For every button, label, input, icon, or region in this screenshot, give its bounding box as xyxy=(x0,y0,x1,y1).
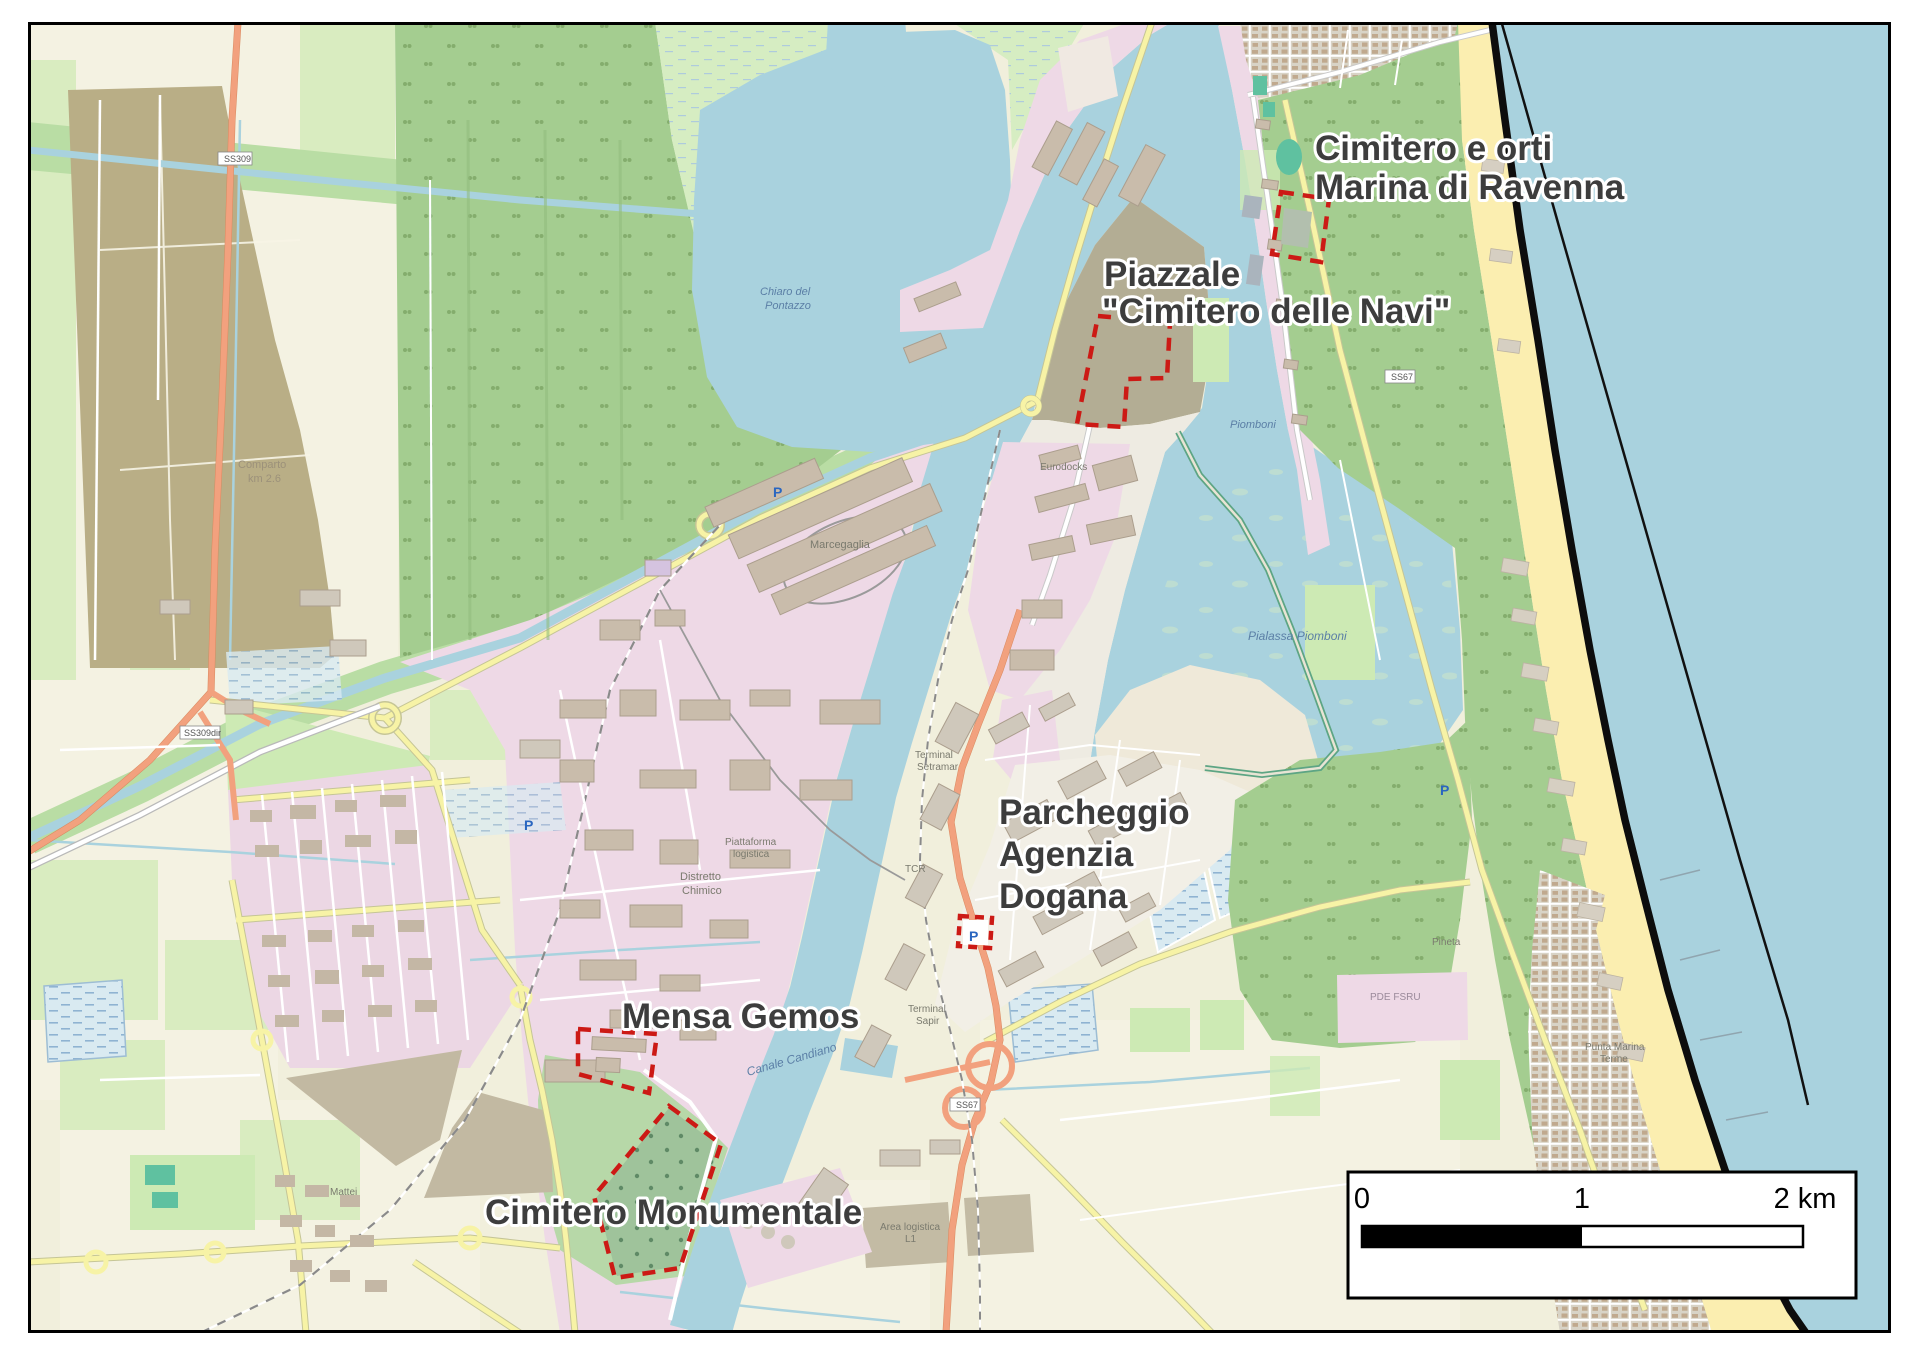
svg-text:Cimitero Monumentale: Cimitero Monumentale xyxy=(485,1193,862,1232)
svg-text:Sapir: Sapir xyxy=(916,1016,940,1027)
svg-text:logistica: logistica xyxy=(733,849,770,860)
svg-text:Dogana: Dogana xyxy=(999,877,1128,916)
svg-text:TCR: TCR xyxy=(905,864,926,875)
svg-text:P: P xyxy=(773,484,782,500)
svg-text:Marcegaglia: Marcegaglia xyxy=(810,539,871,551)
svg-text:Setramar: Setramar xyxy=(917,762,959,773)
svg-text:Terme: Terme xyxy=(1600,1054,1628,1065)
svg-text:Area logistica: Area logistica xyxy=(880,1222,940,1233)
svg-text:Distretto: Distretto xyxy=(680,871,721,883)
svg-text:P: P xyxy=(524,817,533,833)
svg-text:Eurodocks: Eurodocks xyxy=(1040,462,1087,473)
svg-text:Mattei: Mattei xyxy=(330,1187,357,1198)
svg-text:2 km: 2 km xyxy=(1774,1183,1837,1215)
svg-text:L1: L1 xyxy=(905,1234,917,1245)
svg-text:Agenzia: Agenzia xyxy=(999,835,1134,874)
svg-text:Parcheggio: Parcheggio xyxy=(999,793,1190,832)
svg-text:Marina di Ravenna: Marina di Ravenna xyxy=(1315,168,1625,207)
svg-text:Chiaro del: Chiaro del xyxy=(760,286,811,298)
svg-text:SS67: SS67 xyxy=(1391,372,1413,382)
svg-text:PDE FSRU: PDE FSRU xyxy=(1370,992,1421,1003)
svg-text:SS67: SS67 xyxy=(956,1100,978,1110)
svg-text:Mensa Gemos: Mensa Gemos xyxy=(622,997,859,1036)
svg-text:Terminal: Terminal xyxy=(908,1004,946,1015)
svg-text:P: P xyxy=(969,928,978,944)
svg-text:Punta Marina: Punta Marina xyxy=(1585,1042,1645,1053)
svg-text:km 2.6: km 2.6 xyxy=(248,473,281,485)
svg-text:SS309: SS309 xyxy=(224,154,251,164)
svg-text:Piattaforma: Piattaforma xyxy=(725,837,777,848)
svg-text:"Cimitero delle Navi": "Cimitero delle Navi" xyxy=(1102,292,1450,331)
svg-text:P: P xyxy=(1440,782,1449,798)
svg-text:Piomboni: Piomboni xyxy=(1230,419,1276,431)
svg-text:Piazzale: Piazzale xyxy=(1104,255,1240,294)
svg-text:Chimico: Chimico xyxy=(682,885,722,897)
svg-text:Cimitero e orti: Cimitero e orti xyxy=(1315,129,1552,168)
svg-text:Terminal: Terminal xyxy=(915,750,953,761)
svg-text:0: 0 xyxy=(1354,1183,1370,1215)
svg-text:1: 1 xyxy=(1574,1183,1590,1215)
svg-text:SS309dir: SS309dir xyxy=(184,728,221,738)
svg-text:Pineta: Pineta xyxy=(1432,937,1461,948)
svg-text:Pontazzo: Pontazzo xyxy=(765,300,811,312)
svg-text:Pialassa Piomboni: Pialassa Piomboni xyxy=(1248,629,1347,643)
svg-text:Comparto: Comparto xyxy=(238,459,286,471)
